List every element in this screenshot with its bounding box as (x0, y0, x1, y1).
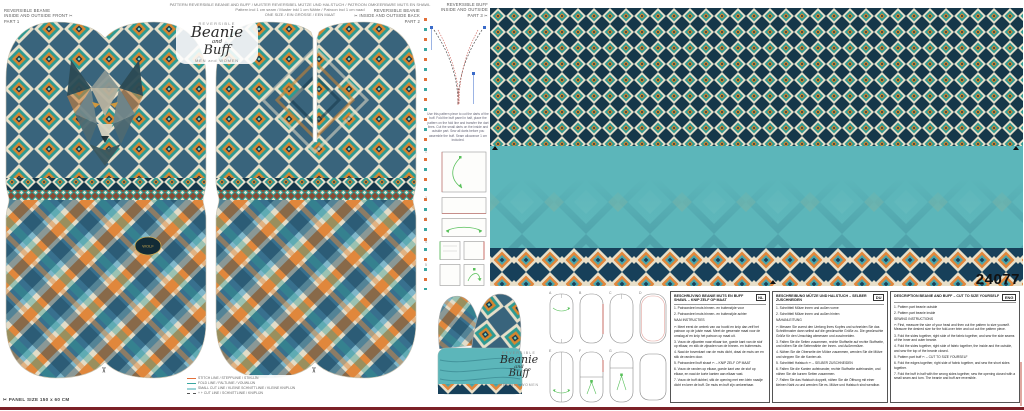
brand-audience: MEN and WOMEN (490, 383, 548, 387)
panel-number: 24077 (952, 271, 1020, 288)
svg-text:C: C (609, 291, 612, 295)
legend-swatch (187, 383, 196, 385)
ruler-ticks (424, 18, 427, 290)
nl-badge: NL (756, 294, 766, 301)
instruction-line: 1. Schnittteil Mütze innen und außen vor… (776, 306, 884, 311)
instruction-line: 5. Schnittteil Halstuch ✂ – SELBER ZUSCH… (776, 361, 884, 366)
legend-text: + + CUT LINE / SCHNITTLINIE / KNIPLIJN (198, 391, 263, 396)
brand-buff: Buff (178, 44, 256, 57)
instruction-line: 5. Pattern part buff ✂ – CUT TO SIZE YOU… (894, 355, 1016, 360)
instruction-line: 2. Schnittteil Mütze innen und außen hin… (776, 312, 884, 317)
legend-row: + + CUT LINE / SCHNITTLINIE / KNIPLIJN (187, 391, 297, 396)
brand-buff: Buff (490, 369, 548, 379)
beanie-piece-front: WOLF ✂ (4, 20, 208, 380)
instruction-line: 7. Falten Sie das Halstuch doppelt, nähe… (776, 378, 884, 387)
notch-triangle-left (492, 146, 498, 150)
instruction-line: 6. Vouw de randen op elkaar, goede kant … (674, 367, 766, 376)
step-number: 4 (425, 240, 427, 244)
svg-text:A: A (549, 291, 552, 295)
legend-swatch (187, 378, 196, 380)
instruction-line: 2. Pattern part beanie inside (894, 311, 1016, 316)
instruction-line: 3. Vouw de zijkanten naar elkaar toe, go… (674, 340, 766, 349)
pattern-panel-sheet: PATTERN REVERSIBLE BEANIE AND BUFF / MUS… (0, 0, 1024, 411)
instructions-column-du: BESCHREIBUNG MÜTZE UND HALSTUCH – SELBER… (772, 291, 888, 403)
bottom-rule (0, 407, 1024, 410)
beanie-pattern-pieces: WOLF ✂ ✂ (2, 12, 426, 398)
panel-size-label: ✂ PANEL SIZE 150 x 60 CM (3, 397, 70, 403)
buff-step-5: 5 (430, 263, 488, 287)
instruction-line: 4. Fold the sides together, right side o… (894, 344, 1016, 353)
step-number: 3 (425, 217, 427, 221)
scissors-mark-front: ✂ (99, 367, 108, 374)
eng-badge: ENG (1002, 294, 1016, 301)
dart-diagram (428, 20, 488, 110)
scissors-mark-back: ✂ (309, 367, 318, 374)
svg-text:B: B (579, 291, 582, 295)
dart-note: Use this pattern piece to cut the darts … (427, 112, 489, 142)
instruction-line: 6. Fold the edges together, right side o… (894, 361, 1016, 370)
svg-text:D: D (639, 291, 642, 295)
nl-header: BESCHRIJVING BEANIE MUTS EN BUFF SHAWL –… (674, 294, 754, 303)
registration-mark (1020, 362, 1022, 406)
eng-header: DESCRIPTION BEANIE AND BUFF – CUT TO SIZ… (894, 294, 1000, 298)
brand-logo-bottom: REVERSIBLE Beanie and Buff MEN and WOMEN (488, 350, 550, 388)
buff-step-1: 1 (430, 150, 488, 194)
instruction-line: 7. Vouw de buff dubbel, stik de opening … (674, 378, 766, 387)
badge-text: WOLF (142, 244, 154, 249)
buff-step-2: 2 (430, 196, 488, 215)
instruction-line: 7. Fold the buff in half with the wrong … (894, 372, 1016, 381)
instruction-line: 4. Nähen Sie die Oberseite der Mütze zus… (776, 350, 884, 359)
buff-fade-overlay (490, 170, 1023, 240)
du-badge: DU (873, 294, 884, 301)
buff-step-3: 3 (430, 217, 488, 238)
instruction-line: 1. Pattern part beanie outside (894, 305, 1016, 310)
instruction-line: 4. Naai de bovenkant van de muts dicht, … (674, 350, 766, 359)
legend-swatch (187, 393, 196, 394)
instruction-line: 2. Patroondeel muts binnen- en buitenzij… (674, 312, 766, 317)
instruction-line: ✂ Messen Sie zuerst den Umfang Ihres Kop… (776, 325, 884, 339)
instruction-panel: REVERSIBLE Beanie and Buff MEN and WOMEN… (430, 288, 1023, 406)
brand-audience: MEN and WOMEN (178, 58, 256, 63)
du-header: BESCHREIBUNG MÜTZE UND HALSTUCH – SELBER… (776, 294, 871, 303)
instruction-line: SEWING INSTRUCTIONS (894, 317, 1016, 322)
instructions-column-eng: DESCRIPTION BEANIE AND BUFF – CUT TO SIZ… (890, 291, 1020, 403)
nl-body: 1. Patroondeel muts binnen- en buitenzij… (674, 306, 766, 387)
svg-text:F: F (579, 349, 581, 353)
notch-triangle-bottom (770, 280, 776, 284)
buff-fabric-border (490, 248, 1023, 286)
buff-fabric-top (490, 8, 1023, 146)
beanie-piece-back: ✂ (214, 20, 418, 380)
part3-line3: PART 3 ✂ (428, 13, 488, 18)
instruction-line: 3. Fold the sides together, right side o… (894, 334, 1016, 343)
legend: STITCH LINE / STEPPLINIE / STIKLIJN FOLD… (186, 375, 298, 397)
svg-text:G: G (609, 349, 612, 353)
du-body: 1. Schnittteil Mütze innen und außen vor… (776, 306, 884, 387)
instruction-line: 5. Patroondeel buff shawl ✂ – KNIP ZELF … (674, 361, 766, 366)
step-number: 2 (425, 196, 427, 200)
step-number: 5 (425, 263, 427, 267)
brand-beanie: Beanie (178, 26, 256, 40)
instruction-line: 6. Falten Sie die Kanten aufeinander, re… (776, 367, 884, 376)
instruction-line: NAAI INSTRUCTIES (674, 318, 766, 323)
label-part3: REVERSIBLE BUFF INSIDE AND OUTSIDE PART … (428, 2, 488, 18)
legend-swatch (187, 388, 196, 390)
instruction-line: 1. Patroondeel muts binnen- en buitenzij… (674, 306, 766, 311)
instruction-line: NÄHANLEITUNG (776, 318, 884, 323)
notch-triangle-right (1013, 146, 1019, 150)
buff-step-4: 4 (430, 240, 488, 261)
instructions-column-nl: BESCHRIJVING BEANIE MUTS EN BUFF SHAWL –… (670, 291, 770, 403)
instruction-line: ✂ Meet eerst de omtrek van uw hoofd en k… (674, 325, 766, 339)
brand-logo-top: REVERSIBLE Beanie and Buff MEN and WOMEN (176, 20, 258, 64)
beanie-step-diagrams: A B C D (548, 290, 668, 404)
instruction-line: ✂ First, measure the size of your head a… (894, 323, 1016, 332)
fabric-badge: WOLF (135, 237, 161, 255)
eng-body: 1. Pattern part beanie outside2. Pattern… (894, 305, 1016, 381)
step-number: 1 (425, 150, 427, 154)
svg-text:E: E (549, 349, 552, 353)
instruction-line: 3. Falten Sie die Seiten zusammen, recht… (776, 340, 884, 349)
